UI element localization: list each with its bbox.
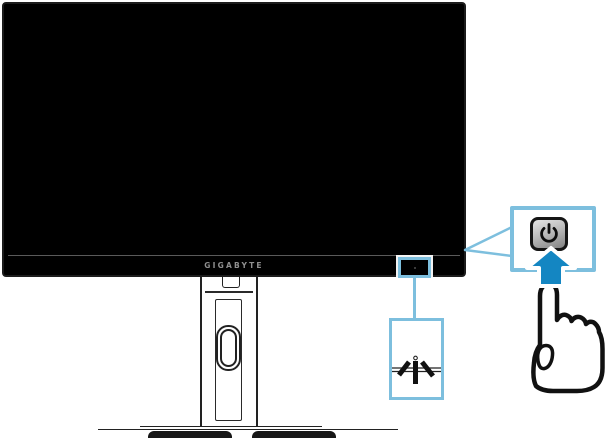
joystick-icon (392, 321, 441, 397)
power-callout-box (510, 206, 596, 272)
brand-logo: GIGABYTE (4, 261, 464, 271)
base-foot-right (252, 431, 336, 438)
stand-seam-line (205, 291, 253, 293)
callout-connector-line (413, 276, 416, 320)
stand-base-edge (140, 426, 322, 427)
control-button-highlight[interactable] (398, 257, 431, 278)
bezel-divider (8, 255, 460, 256)
pointing-hand-icon (533, 284, 602, 391)
joystick-detail-box (389, 318, 444, 400)
illustration-canvas: GIGABYTE (0, 0, 606, 438)
base-foot-left (148, 431, 232, 438)
stand-base-edge-2 (98, 429, 398, 430)
power-button[interactable] (530, 217, 568, 251)
stand-release-notch (222, 277, 240, 288)
monitor-screen: GIGABYTE (2, 2, 466, 277)
power-icon (538, 223, 560, 245)
control-button-dot (414, 267, 416, 269)
cable-cutout-inner (220, 329, 237, 367)
callout-pointer (465, 227, 512, 256)
